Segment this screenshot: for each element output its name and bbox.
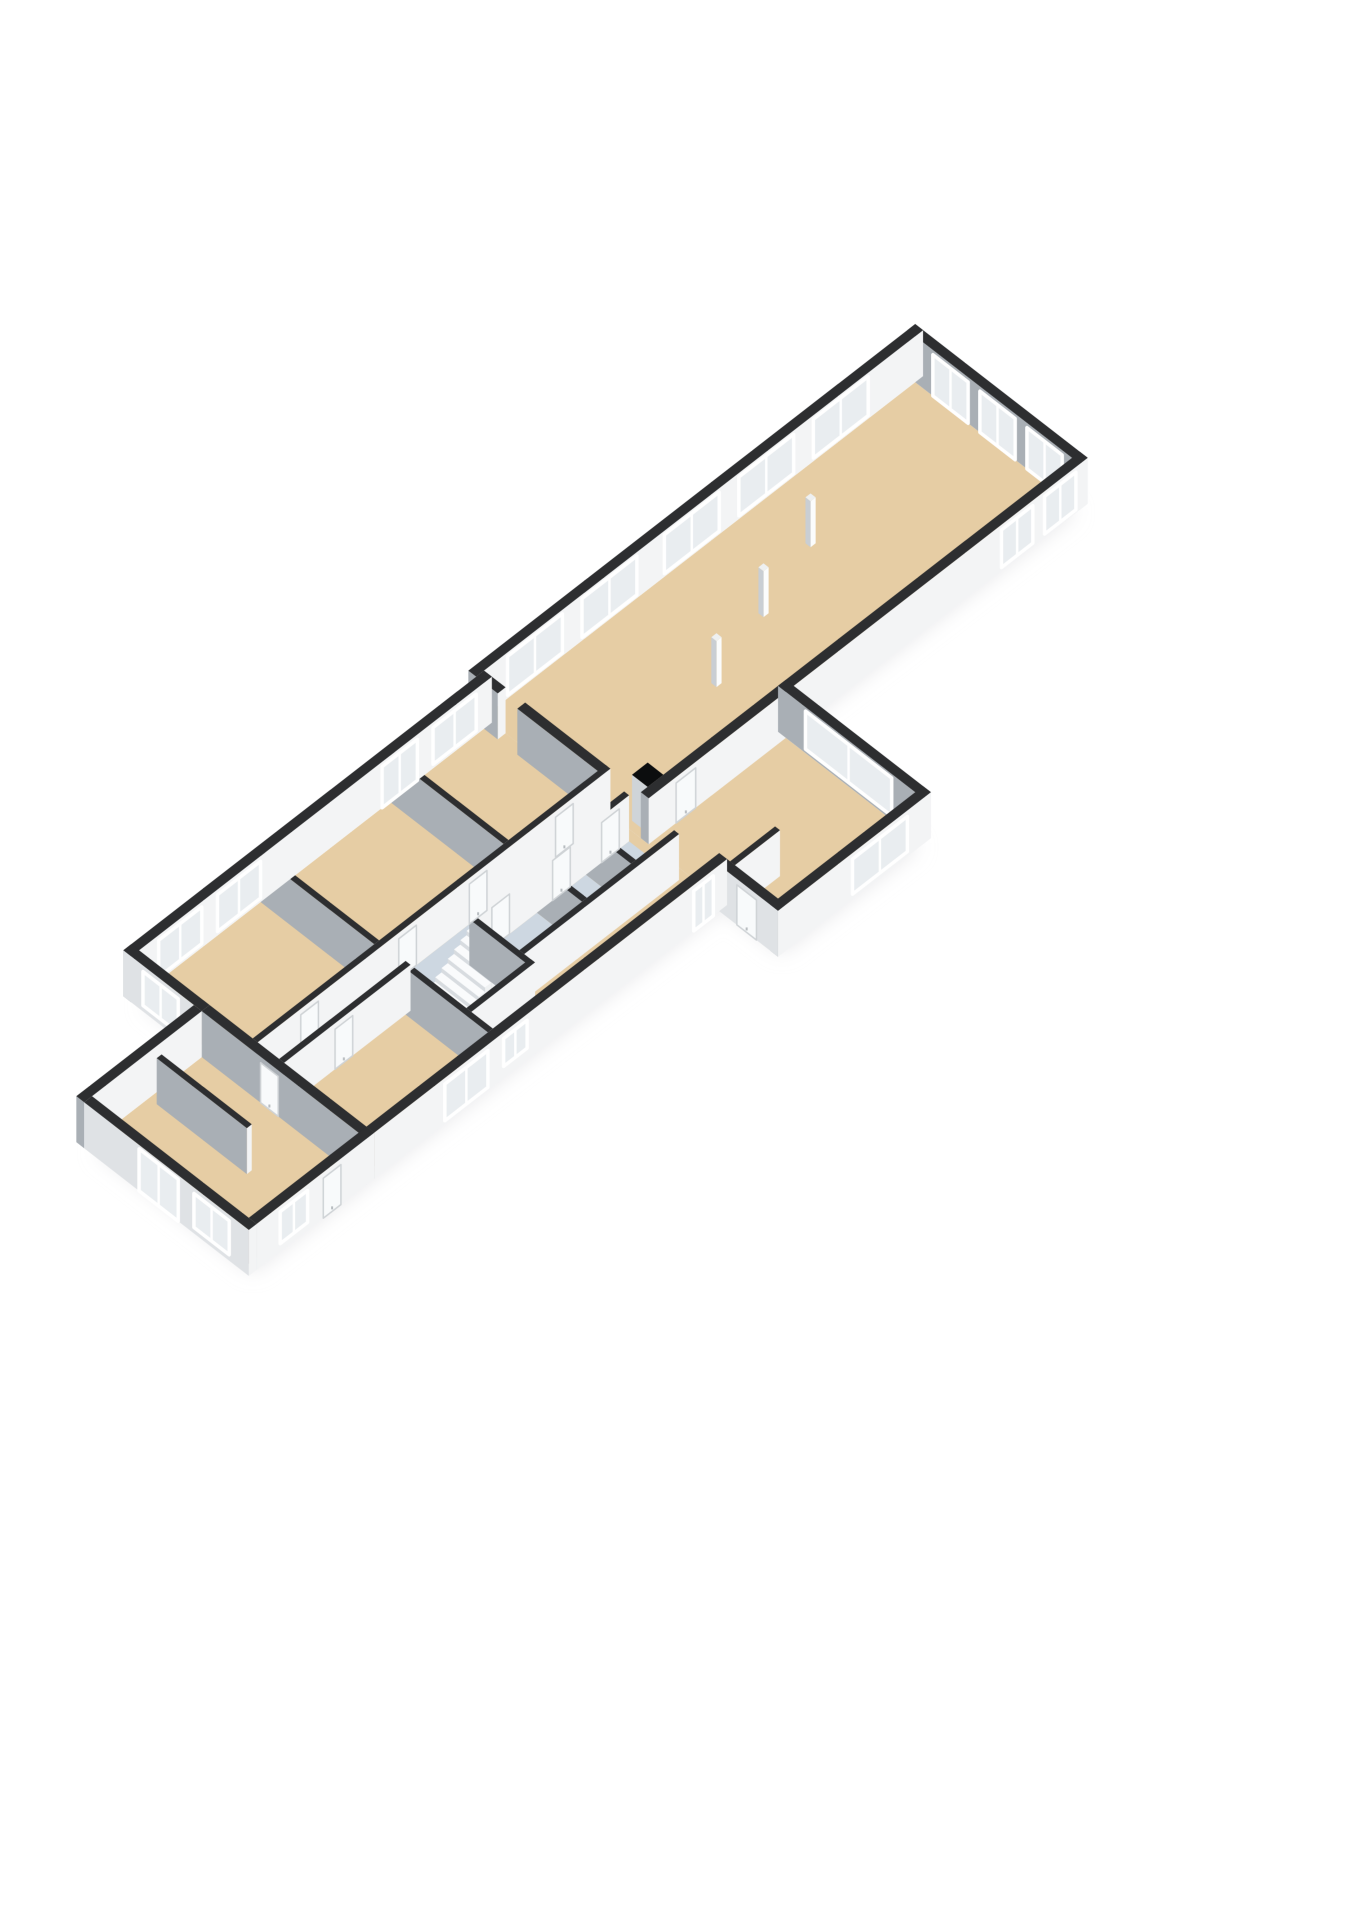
column-2: [758, 563, 768, 617]
column-3: [805, 493, 815, 547]
floorplan-viewer: [0, 0, 1358, 1920]
floorplan-3d-svg: [0, 0, 1358, 1920]
column-1: [711, 633, 721, 687]
floorplan-scene: [76, 324, 1087, 1276]
